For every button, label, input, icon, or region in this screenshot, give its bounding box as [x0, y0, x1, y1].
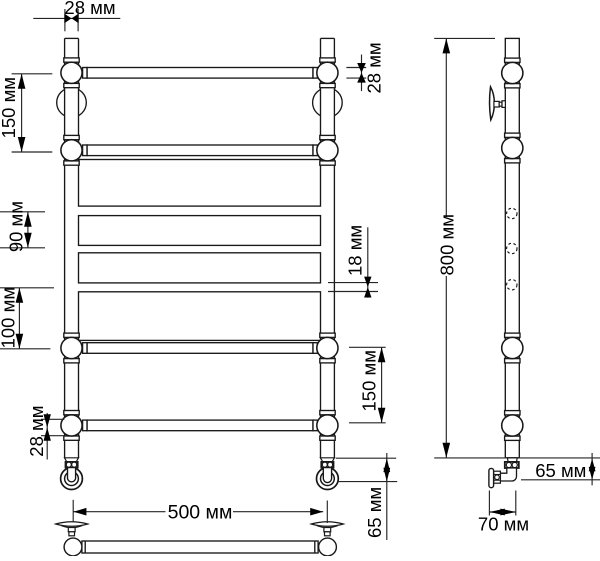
- svg-text:70 мм: 70 мм: [478, 514, 529, 535]
- svg-text:800 мм: 800 мм: [437, 214, 458, 275]
- svg-text:65 мм: 65 мм: [535, 460, 586, 481]
- svg-text:18 мм: 18 мм: [345, 225, 366, 276]
- svg-text:150 мм: 150 мм: [0, 77, 19, 138]
- svg-text:100 мм: 100 мм: [0, 287, 18, 348]
- svg-text:90 мм: 90 мм: [5, 201, 26, 252]
- svg-text:28 мм: 28 мм: [364, 42, 385, 93]
- svg-text:65 мм: 65 мм: [364, 487, 385, 538]
- svg-text:500 мм: 500 мм: [168, 501, 233, 523]
- svg-text:28 мм: 28 мм: [64, 0, 115, 18]
- svg-text:150 мм: 150 мм: [358, 350, 379, 411]
- svg-text:28 мм: 28 мм: [26, 406, 47, 457]
